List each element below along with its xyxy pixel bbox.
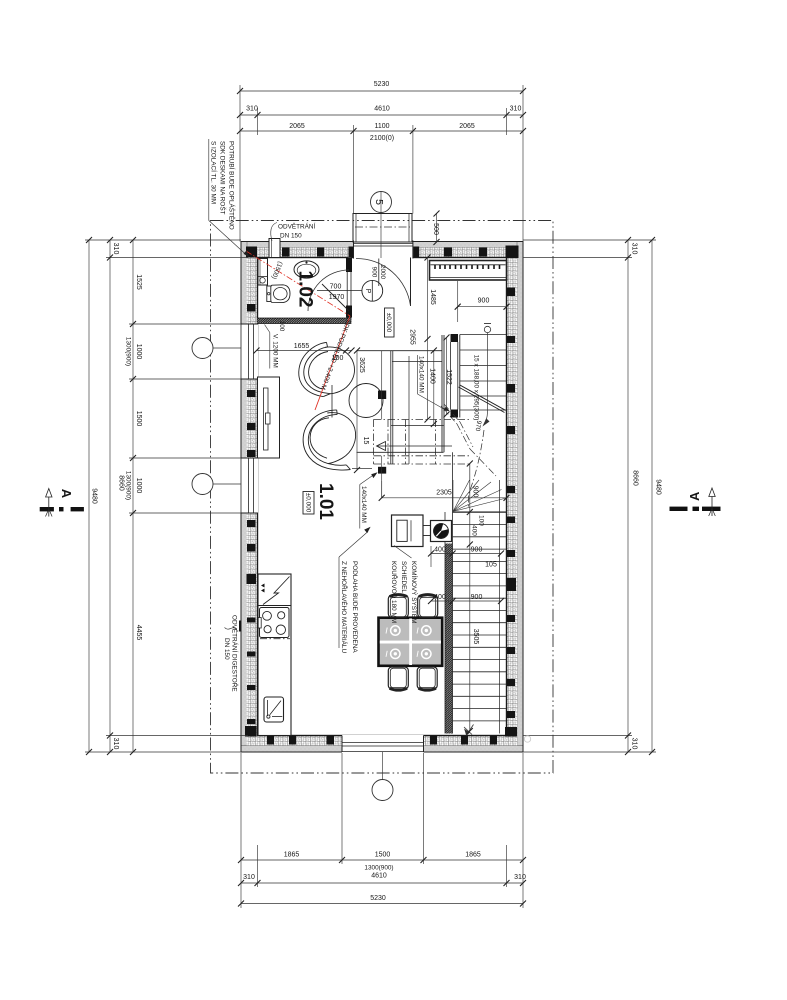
svg-text:V. 1200 MM: V. 1200 MM — [272, 334, 279, 368]
svg-text:4455: 4455 — [135, 625, 142, 641]
svg-text:A: A — [59, 489, 74, 499]
svg-text:S IZOLACÍ TL. 30 MM: S IZOLACÍ TL. 30 MM — [210, 141, 219, 204]
svg-text:100: 100 — [478, 515, 485, 526]
svg-text:1100: 1100 — [374, 123, 389, 130]
svg-text:8660: 8660 — [118, 475, 125, 491]
svg-text:1400: 1400 — [429, 368, 436, 384]
svg-text:5: 5 — [373, 199, 385, 205]
svg-text:2065: 2065 — [289, 123, 305, 130]
svg-text:15: 15 — [362, 437, 369, 445]
svg-text:1865: 1865 — [465, 852, 481, 859]
svg-text:4610: 4610 — [371, 873, 387, 880]
svg-text:400: 400 — [434, 547, 446, 554]
svg-text:PODLAHA BUDE PROVEDENA: PODLAHA BUDE PROVEDENA — [351, 561, 358, 653]
svg-text:9480: 9480 — [655, 479, 662, 495]
svg-text:Z NEHOŘLAVÉHO MATERIÁLU: Z NEHOŘLAVÉHO MATERIÁLU — [340, 561, 349, 653]
svg-text:2100(0): 2100(0) — [370, 135, 394, 142]
svg-text:2305: 2305 — [436, 490, 452, 497]
svg-text:POTRUBÍ BUDE OPLÁŠTĚNO: POTRUBÍ BUDE OPLÁŠTĚNO — [228, 141, 237, 230]
svg-text:310: 310 — [112, 738, 119, 750]
svg-text:1300(900): 1300(900) — [125, 337, 132, 366]
svg-text:140x140 MM: 140x140 MM — [360, 486, 367, 523]
svg-text:SCHIEDEL: SCHIEDEL — [400, 561, 407, 593]
svg-text:SDK DESKAMI NA ROŠT: SDK DESKAMI NA ROŠT — [219, 141, 228, 215]
svg-text:140x140 MM: 140x140 MM — [418, 356, 425, 393]
svg-text:KOUŘOVOD 180 MM: KOUŘOVOD 180 MM — [390, 561, 399, 623]
svg-text:4610: 4610 — [374, 106, 390, 113]
svg-text:8660: 8660 — [632, 470, 639, 486]
svg-text:3625: 3625 — [358, 357, 365, 373]
svg-text:±0,000: ±0,000 — [385, 313, 392, 333]
svg-text:ODVĚTRÁNÍ DIGESTOŘE: ODVĚTRÁNÍ DIGESTOŘE — [231, 615, 240, 692]
svg-text:1000: 1000 — [135, 478, 142, 494]
svg-text:ODVĚTRÁNÍ: ODVĚTRÁNÍ — [278, 222, 316, 231]
svg-text:±0,000: ±0,000 — [305, 493, 312, 513]
svg-text:500: 500 — [432, 223, 439, 235]
svg-text:5230: 5230 — [374, 81, 390, 88]
svg-text:310: 310 — [246, 106, 258, 113]
svg-text:900: 900 — [471, 486, 478, 498]
svg-text:900: 900 — [370, 267, 377, 278]
svg-text:1865: 1865 — [284, 852, 300, 859]
svg-text:A: A — [687, 491, 702, 501]
svg-text:1300(900): 1300(900) — [364, 865, 393, 872]
svg-text:400: 400 — [470, 525, 477, 536]
svg-text:400: 400 — [434, 594, 446, 601]
svg-text:1300(900): 1300(900) — [125, 471, 132, 500]
svg-text:P: P — [364, 289, 371, 294]
svg-text:9480: 9480 — [91, 488, 98, 504]
svg-text:900: 900 — [471, 594, 483, 601]
svg-text:900: 900 — [478, 298, 490, 305]
svg-text:310: 310 — [631, 243, 638, 255]
svg-text:1655: 1655 — [294, 343, 310, 350]
svg-text:1522: 1522 — [445, 369, 452, 385]
svg-text:100: 100 — [278, 321, 285, 332]
svg-text:310: 310 — [510, 106, 522, 113]
svg-text:KOMÍNOVÝ SYSTÉM: KOMÍNOVÝ SYSTÉM — [410, 561, 419, 624]
svg-text:2000: 2000 — [379, 265, 386, 280]
svg-text:1500: 1500 — [135, 411, 142, 427]
svg-text:1.01: 1.01 — [315, 483, 336, 520]
svg-text:700: 700 — [330, 284, 342, 291]
svg-text:DN 150: DN 150 — [223, 638, 230, 660]
svg-text:3505: 3505 — [472, 629, 479, 645]
svg-text:1970: 1970 — [329, 294, 345, 301]
svg-text:100: 100 — [332, 355, 344, 362]
svg-text:310: 310 — [243, 874, 255, 881]
svg-text:2065: 2065 — [459, 123, 475, 130]
svg-text:900: 900 — [471, 547, 483, 554]
svg-text:DN 150: DN 150 — [280, 233, 302, 240]
svg-text:2955: 2955 — [409, 329, 416, 345]
svg-text:310: 310 — [112, 243, 119, 255]
svg-text:1500: 1500 — [375, 852, 391, 859]
svg-text:310: 310 — [514, 874, 526, 881]
svg-text:1485: 1485 — [429, 289, 436, 305]
svg-text:1525: 1525 — [135, 274, 142, 290]
svg-text:1000: 1000 — [135, 344, 142, 360]
svg-text:1.02: 1.02 — [295, 271, 316, 308]
svg-text:15 x 188,00 x 295(300): 15 x 188,00 x 295(300) — [473, 355, 480, 421]
svg-text:105: 105 — [485, 562, 497, 569]
svg-text:5230: 5230 — [370, 895, 386, 902]
svg-text:310: 310 — [631, 738, 638, 750]
